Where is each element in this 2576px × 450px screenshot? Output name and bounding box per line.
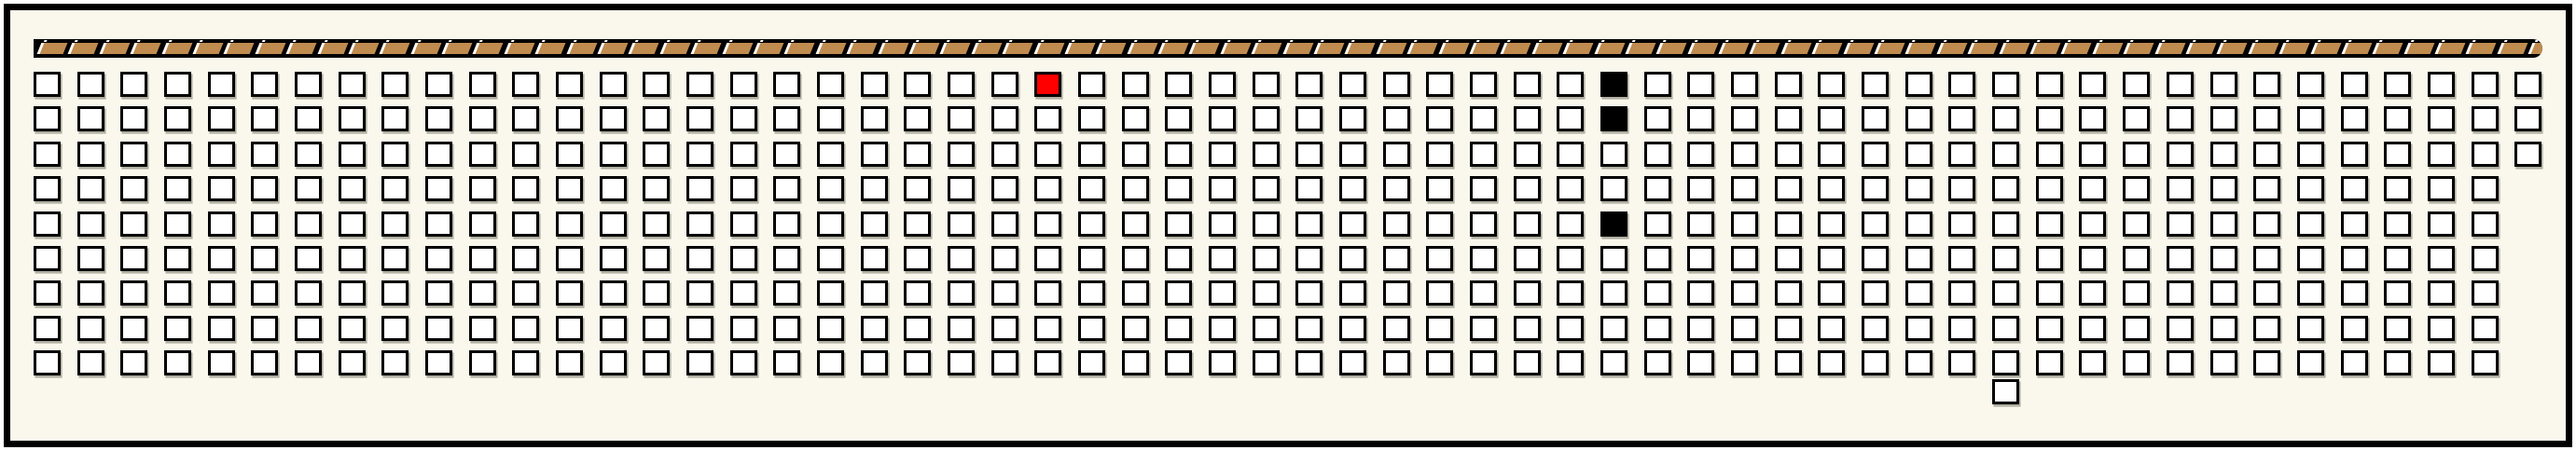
- seat-cell[interactable]: [2079, 246, 2106, 271]
- seat-cell[interactable]: [948, 211, 975, 237]
- seat-cell[interactable]: [600, 246, 627, 271]
- seat-cell[interactable]: [1862, 106, 1889, 131]
- seat-cell[interactable]: [1295, 176, 1323, 201]
- seat-cell[interactable]: [2341, 350, 2368, 375]
- seat-cell[interactable]: [1862, 176, 1889, 201]
- seat-cell[interactable]: [1948, 72, 1975, 97]
- seat-cell[interactable]: [2472, 211, 2499, 237]
- seat-cell[interactable]: [1253, 176, 1280, 201]
- seat-cell[interactable]: [2036, 211, 2063, 237]
- seat-cell[interactable]: [425, 280, 452, 306]
- seat-cell[interactable]: [1644, 246, 1671, 271]
- seat-cell[interactable]: [2079, 211, 2106, 237]
- seat-cell[interactable]: [730, 350, 757, 375]
- seat-cell[interactable]: [1948, 176, 1975, 201]
- selected-seat-red[interactable]: [1034, 72, 1061, 97]
- seat-cell[interactable]: [1122, 142, 1149, 167]
- seat-cell[interactable]: [1731, 142, 1758, 167]
- seat-cell[interactable]: [1034, 350, 1061, 375]
- seat-cell[interactable]: [1905, 176, 1932, 201]
- seat-cell[interactable]: [1557, 246, 1584, 271]
- seat-cell[interactable]: [1905, 350, 1932, 375]
- seat-cell[interactable]: [991, 211, 1018, 237]
- seat-cell[interactable]: [34, 176, 61, 201]
- seat-cell[interactable]: [773, 280, 800, 306]
- seat-cell[interactable]: [686, 211, 713, 237]
- seat-cell[interactable]: [1775, 142, 1802, 167]
- seat-cell[interactable]: [600, 211, 627, 237]
- seat-cell[interactable]: [77, 106, 104, 131]
- seat-cell[interactable]: [773, 72, 800, 97]
- seat-cell[interactable]: [600, 106, 627, 131]
- seat-cell[interactable]: [1644, 316, 1671, 341]
- seat-cell[interactable]: [2514, 72, 2541, 97]
- seat-cell[interactable]: [295, 72, 322, 97]
- occupied-seat-black[interactable]: [1600, 72, 1627, 97]
- seat-cell[interactable]: [1034, 176, 1061, 201]
- seat-cell[interactable]: [861, 350, 888, 375]
- seat-cell[interactable]: [381, 316, 409, 341]
- seat-cell[interactable]: [1253, 280, 1280, 306]
- seat-cell[interactable]: [2384, 280, 2411, 306]
- seat-cell[interactable]: [1557, 106, 1584, 131]
- seat-cell[interactable]: [2167, 246, 2194, 271]
- seat-cell[interactable]: [1644, 142, 1671, 167]
- seat-cell[interactable]: [1078, 316, 1105, 341]
- seat-cell[interactable]: [1383, 142, 1410, 167]
- seat-cell[interactable]: [2167, 316, 2194, 341]
- seat-cell[interactable]: [164, 142, 191, 167]
- seat-cell[interactable]: [77, 211, 104, 237]
- seat-cell[interactable]: [948, 176, 975, 201]
- seat-cell[interactable]: [556, 211, 583, 237]
- seat-cell[interactable]: [469, 316, 496, 341]
- seat-cell[interactable]: [2253, 106, 2280, 131]
- seat-cell[interactable]: [512, 72, 539, 97]
- seat-cell[interactable]: [2384, 211, 2411, 237]
- seat-cell[interactable]: [469, 211, 496, 237]
- seat-cell[interactable]: [730, 211, 757, 237]
- seat-cell[interactable]: [381, 280, 409, 306]
- seat-cell[interactable]: [251, 142, 278, 167]
- seat-cell[interactable]: [904, 142, 931, 167]
- seat-cell[interactable]: [2341, 142, 2368, 167]
- seat-cell[interactable]: [817, 280, 844, 306]
- seat-cell[interactable]: [1862, 280, 1889, 306]
- seat-cell[interactable]: [1034, 246, 1061, 271]
- seat-cell[interactable]: [643, 350, 670, 375]
- seat-cell[interactable]: [1253, 350, 1280, 375]
- seat-cell[interactable]: [1209, 72, 1236, 97]
- seat-cell[interactable]: [1687, 246, 1714, 271]
- seat-cell[interactable]: [643, 280, 670, 306]
- seat-cell[interactable]: [1905, 106, 1932, 131]
- seat-cell[interactable]: [861, 72, 888, 97]
- seat-cell[interactable]: [34, 211, 61, 237]
- seat-cell[interactable]: [1862, 350, 1889, 375]
- seat-cell[interactable]: [512, 350, 539, 375]
- seat-cell[interactable]: [1818, 280, 1845, 306]
- seat-cell[interactable]: [991, 72, 1018, 97]
- seat-cell[interactable]: [120, 142, 147, 167]
- seat-cell[interactable]: [904, 350, 931, 375]
- seat-cell[interactable]: [1644, 280, 1671, 306]
- seat-cell[interactable]: [1514, 280, 1541, 306]
- seat-cell[interactable]: [208, 316, 235, 341]
- seat-cell[interactable]: [77, 280, 104, 306]
- seat-cell[interactable]: [2297, 350, 2324, 375]
- seat-cell[interactable]: [339, 142, 366, 167]
- seat-cell[interactable]: [295, 316, 322, 341]
- seat-cell[interactable]: [1600, 316, 1627, 341]
- seat-cell[interactable]: [425, 246, 452, 271]
- seat-cell[interactable]: [1557, 280, 1584, 306]
- seat-cell[interactable]: [469, 142, 496, 167]
- seat-cell[interactable]: [1295, 72, 1323, 97]
- seat-cell[interactable]: [2167, 142, 2194, 167]
- seat-cell[interactable]: [339, 106, 366, 131]
- seat-cell[interactable]: [600, 72, 627, 97]
- seat-cell[interactable]: [2167, 176, 2194, 201]
- seat-cell[interactable]: [1818, 142, 1845, 167]
- seat-cell[interactable]: [861, 246, 888, 271]
- seat-cell[interactable]: [77, 176, 104, 201]
- seat-cell[interactable]: [2472, 106, 2499, 131]
- seat-cell[interactable]: [2210, 350, 2237, 375]
- seat-cell[interactable]: [861, 106, 888, 131]
- seat-cell[interactable]: [1775, 280, 1802, 306]
- seat-cell[interactable]: [164, 72, 191, 97]
- seat-cell[interactable]: [556, 350, 583, 375]
- seat-cell[interactable]: [381, 350, 409, 375]
- seat-cell[interactable]: [164, 211, 191, 237]
- seat-cell[interactable]: [1339, 280, 1366, 306]
- seat-cell[interactable]: [1034, 316, 1061, 341]
- seat-cell[interactable]: [1687, 211, 1714, 237]
- seat-cell[interactable]: [1426, 72, 1453, 97]
- seat-cell[interactable]: [1775, 106, 1802, 131]
- seat-cell[interactable]: [948, 72, 975, 97]
- seat-cell[interactable]: [948, 280, 975, 306]
- seat-cell[interactable]: [1775, 350, 1802, 375]
- seat-cell[interactable]: [1253, 246, 1280, 271]
- seat-cell[interactable]: [1818, 72, 1845, 97]
- seat-cell[interactable]: [2079, 72, 2106, 97]
- seat-cell[interactable]: [730, 176, 757, 201]
- seat-cell[interactable]: [251, 211, 278, 237]
- seat-cell[interactable]: [730, 246, 757, 271]
- occupied-seat-black[interactable]: [1600, 211, 1627, 237]
- seat-cell[interactable]: [817, 350, 844, 375]
- seat-cell[interactable]: [2428, 176, 2455, 201]
- seat-cell[interactable]: [686, 246, 713, 271]
- seat-cell[interactable]: [991, 246, 1018, 271]
- seat-cell[interactable]: [2341, 246, 2368, 271]
- seat-cell[interactable]: [1687, 106, 1714, 131]
- seat-cell[interactable]: [295, 176, 322, 201]
- seat-cell[interactable]: [2428, 106, 2455, 131]
- seat-cell[interactable]: [1644, 211, 1671, 237]
- seat-cell[interactable]: [1557, 72, 1584, 97]
- seat-cell[interactable]: [686, 316, 713, 341]
- seat-cell[interactable]: [1470, 72, 1497, 97]
- seat-cell[interactable]: [1818, 176, 1845, 201]
- seat-cell[interactable]: [34, 246, 61, 271]
- detached-seat[interactable]: [1992, 379, 2019, 404]
- seat-cell[interactable]: [1383, 72, 1410, 97]
- seat-cell[interactable]: [904, 106, 931, 131]
- seat-cell[interactable]: [686, 350, 713, 375]
- seat-cell[interactable]: [1600, 280, 1627, 306]
- seat-cell[interactable]: [1818, 106, 1845, 131]
- seat-cell[interactable]: [1078, 142, 1105, 167]
- seat-cell[interactable]: [1209, 350, 1236, 375]
- seat-cell[interactable]: [904, 316, 931, 341]
- seat-cell[interactable]: [77, 142, 104, 167]
- seat-cell[interactable]: [2167, 211, 2194, 237]
- seat-cell[interactable]: [556, 106, 583, 131]
- seat-cell[interactable]: [2036, 350, 2063, 375]
- seat-cell[interactable]: [600, 316, 627, 341]
- seat-cell[interactable]: [643, 142, 670, 167]
- seat-cell[interactable]: [2123, 142, 2150, 167]
- seat-cell[interactable]: [2167, 350, 2194, 375]
- seat-cell[interactable]: [600, 176, 627, 201]
- seat-cell[interactable]: [120, 176, 147, 201]
- seat-cell[interactable]: [556, 280, 583, 306]
- seat-cell[interactable]: [730, 280, 757, 306]
- seat-cell[interactable]: [643, 106, 670, 131]
- seat-cell[interactable]: [948, 316, 975, 341]
- seat-cell[interactable]: [512, 211, 539, 237]
- seat-cell[interactable]: [1078, 176, 1105, 201]
- seat-cell[interactable]: [1122, 211, 1149, 237]
- seat-cell[interactable]: [2123, 72, 2150, 97]
- seat-cell[interactable]: [2079, 350, 2106, 375]
- seat-cell[interactable]: [1557, 350, 1584, 375]
- seat-cell[interactable]: [1905, 211, 1932, 237]
- seat-cell[interactable]: [2341, 176, 2368, 201]
- seat-cell[interactable]: [1034, 106, 1061, 131]
- seat-cell[interactable]: [1339, 211, 1366, 237]
- seat-cell[interactable]: [1992, 142, 2019, 167]
- seat-cell[interactable]: [1731, 246, 1758, 271]
- seat-cell[interactable]: [1209, 176, 1236, 201]
- seat-cell[interactable]: [2514, 142, 2541, 167]
- seat-cell[interactable]: [686, 142, 713, 167]
- seat-cell[interactable]: [861, 211, 888, 237]
- seat-cell[interactable]: [1992, 106, 2019, 131]
- seat-cell[interactable]: [861, 142, 888, 167]
- seat-cell[interactable]: [991, 316, 1018, 341]
- seat-cell[interactable]: [1339, 176, 1366, 201]
- seat-cell[interactable]: [773, 246, 800, 271]
- seat-cell[interactable]: [2428, 246, 2455, 271]
- seat-cell[interactable]: [1339, 106, 1366, 131]
- seat-cell[interactable]: [469, 106, 496, 131]
- seat-cell[interactable]: [295, 106, 322, 131]
- seat-cell[interactable]: [1339, 246, 1366, 271]
- seat-cell[interactable]: [251, 280, 278, 306]
- seat-cell[interactable]: [2167, 72, 2194, 97]
- seat-cell[interactable]: [1731, 72, 1758, 97]
- seat-cell[interactable]: [1165, 106, 1192, 131]
- seat-cell[interactable]: [2297, 142, 2324, 167]
- seat-cell[interactable]: [1514, 72, 1541, 97]
- seat-cell[interactable]: [381, 246, 409, 271]
- seat-cell[interactable]: [2123, 106, 2150, 131]
- seat-cell[interactable]: [251, 246, 278, 271]
- seat-cell[interactable]: [1992, 246, 2019, 271]
- seat-cell[interactable]: [208, 350, 235, 375]
- seat-cell[interactable]: [1383, 211, 1410, 237]
- seat-cell[interactable]: [34, 142, 61, 167]
- seat-cell[interactable]: [1122, 72, 1149, 97]
- seat-cell[interactable]: [904, 280, 931, 306]
- seat-cell[interactable]: [2384, 246, 2411, 271]
- seat-cell[interactable]: [2079, 142, 2106, 167]
- seat-cell[interactable]: [339, 72, 366, 97]
- seat-cell[interactable]: [251, 316, 278, 341]
- seat-cell[interactable]: [817, 211, 844, 237]
- seat-cell[interactable]: [208, 176, 235, 201]
- seat-cell[interactable]: [1470, 142, 1497, 167]
- seat-cell[interactable]: [2167, 280, 2194, 306]
- seat-cell[interactable]: [381, 211, 409, 237]
- seat-cell[interactable]: [1253, 106, 1280, 131]
- seat-cell[interactable]: [77, 316, 104, 341]
- seat-cell[interactable]: [34, 72, 61, 97]
- seat-cell[interactable]: [1600, 350, 1627, 375]
- seat-cell[interactable]: [425, 106, 452, 131]
- seat-cell[interactable]: [643, 246, 670, 271]
- seat-cell[interactable]: [1034, 211, 1061, 237]
- seat-cell[interactable]: [2123, 350, 2150, 375]
- seat-cell[interactable]: [1905, 246, 1932, 271]
- seat-cell[interactable]: [512, 246, 539, 271]
- seat-cell[interactable]: [1078, 211, 1105, 237]
- seat-cell[interactable]: [1731, 106, 1758, 131]
- seat-cell[interactable]: [1339, 72, 1366, 97]
- seat-cell[interactable]: [1253, 142, 1280, 167]
- seat-cell[interactable]: [556, 142, 583, 167]
- seat-cell[interactable]: [1426, 350, 1453, 375]
- seat-cell[interactable]: [1557, 316, 1584, 341]
- seat-cell[interactable]: [339, 211, 366, 237]
- seat-cell[interactable]: [1295, 142, 1323, 167]
- seat-cell[interactable]: [251, 176, 278, 201]
- seat-cell[interactable]: [1514, 142, 1541, 167]
- seat-cell[interactable]: [1775, 211, 1802, 237]
- seat-cell[interactable]: [295, 280, 322, 306]
- seat-cell[interactable]: [1383, 246, 1410, 271]
- seat-cell[interactable]: [1992, 176, 2019, 201]
- seat-cell[interactable]: [208, 106, 235, 131]
- seat-cell[interactable]: [208, 211, 235, 237]
- seat-cell[interactable]: [512, 316, 539, 341]
- seat-cell[interactable]: [512, 176, 539, 201]
- seat-cell[interactable]: [1383, 106, 1410, 131]
- seat-cell[interactable]: [2210, 72, 2237, 97]
- seat-cell[interactable]: [1775, 316, 1802, 341]
- seat-cell[interactable]: [1470, 176, 1497, 201]
- seat-cell[interactable]: [2472, 176, 2499, 201]
- seat-cell[interactable]: [1948, 142, 1975, 167]
- seat-cell[interactable]: [1731, 316, 1758, 341]
- seat-cell[interactable]: [425, 316, 452, 341]
- seat-cell[interactable]: [1600, 246, 1627, 271]
- seat-cell[interactable]: [425, 72, 452, 97]
- seat-cell[interactable]: [1557, 142, 1584, 167]
- seat-cell[interactable]: [120, 211, 147, 237]
- seat-cell[interactable]: [381, 106, 409, 131]
- seat-cell[interactable]: [1122, 106, 1149, 131]
- seat-cell[interactable]: [1470, 106, 1497, 131]
- seat-cell[interactable]: [1078, 72, 1105, 97]
- seat-cell[interactable]: [1165, 280, 1192, 306]
- seat-cell[interactable]: [1862, 246, 1889, 271]
- seat-cell[interactable]: [1514, 211, 1541, 237]
- seat-cell[interactable]: [1905, 142, 1932, 167]
- seat-cell[interactable]: [643, 176, 670, 201]
- seat-cell[interactable]: [2036, 72, 2063, 97]
- seat-cell[interactable]: [600, 350, 627, 375]
- seat-cell[interactable]: [2253, 142, 2280, 167]
- seat-cell[interactable]: [686, 280, 713, 306]
- seat-cell[interactable]: [1426, 142, 1453, 167]
- seat-cell[interactable]: [1339, 350, 1366, 375]
- seat-cell[interactable]: [512, 106, 539, 131]
- seat-cell[interactable]: [1644, 72, 1671, 97]
- seat-cell[interactable]: [2036, 280, 2063, 306]
- seat-cell[interactable]: [1122, 280, 1149, 306]
- seat-cell[interactable]: [2384, 176, 2411, 201]
- seat-cell[interactable]: [1600, 176, 1627, 201]
- seat-cell[interactable]: [861, 176, 888, 201]
- seat-cell[interactable]: [1295, 246, 1323, 271]
- seat-cell[interactable]: [1775, 176, 1802, 201]
- seat-cell[interactable]: [164, 246, 191, 271]
- seat-cell[interactable]: [2036, 246, 2063, 271]
- seat-cell[interactable]: [1209, 316, 1236, 341]
- seat-cell[interactable]: [425, 142, 452, 167]
- seat-cell[interactable]: [1470, 246, 1497, 271]
- seat-cell[interactable]: [1426, 316, 1453, 341]
- seat-cell[interactable]: [1034, 142, 1061, 167]
- seat-cell[interactable]: [2079, 280, 2106, 306]
- seat-cell[interactable]: [77, 246, 104, 271]
- seat-cell[interactable]: [1165, 246, 1192, 271]
- seat-cell[interactable]: [1992, 72, 2019, 97]
- seat-cell[interactable]: [1514, 106, 1541, 131]
- seat-cell[interactable]: [164, 280, 191, 306]
- seat-cell[interactable]: [1253, 316, 1280, 341]
- seat-cell[interactable]: [2428, 211, 2455, 237]
- seat-cell[interactable]: [1209, 280, 1236, 306]
- seat-cell[interactable]: [1687, 142, 1714, 167]
- seat-cell[interactable]: [817, 316, 844, 341]
- seat-cell[interactable]: [1078, 246, 1105, 271]
- seat-cell[interactable]: [817, 176, 844, 201]
- seat-cell[interactable]: [1818, 246, 1845, 271]
- seat-cell[interactable]: [1165, 350, 1192, 375]
- seat-cell[interactable]: [773, 142, 800, 167]
- seat-cell[interactable]: [2428, 280, 2455, 306]
- seat-cell[interactable]: [1731, 350, 1758, 375]
- seat-cell[interactable]: [251, 72, 278, 97]
- seat-cell[interactable]: [339, 350, 366, 375]
- seat-cell[interactable]: [556, 246, 583, 271]
